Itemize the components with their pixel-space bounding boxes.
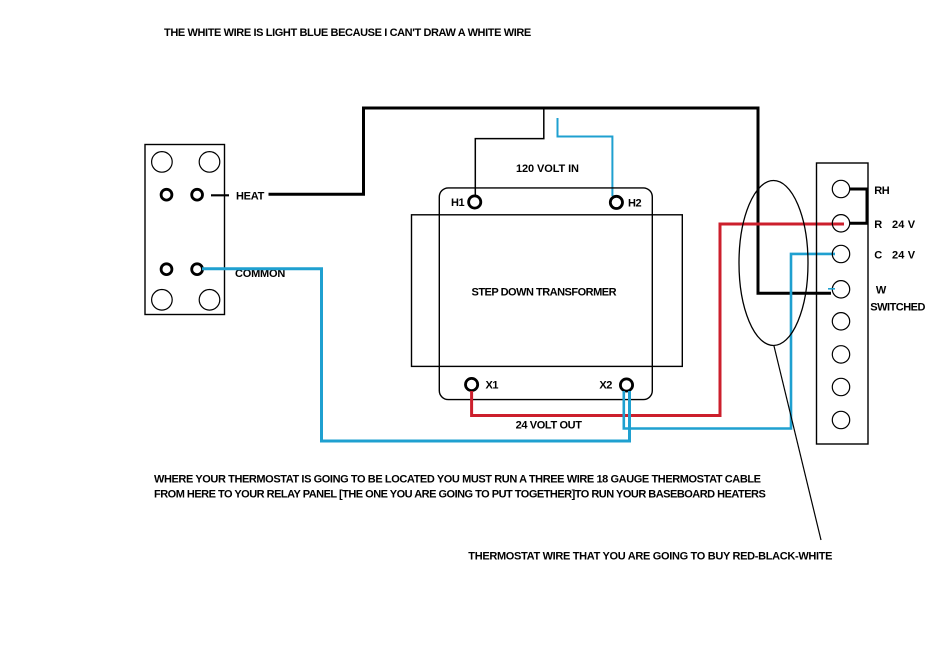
svg-text:FROM HERE TO YOUR RELAY PANEL: FROM HERE TO YOUR RELAY PANEL [THE ONE Y…	[154, 489, 765, 501]
svg-text:X1: X1	[486, 380, 499, 392]
svg-text:THE WHITE WIRE IS LIGHT BLUE B: THE WHITE WIRE IS LIGHT BLUE BECAUSE I C…	[164, 27, 531, 39]
svg-text:STEP DOWN TRANSFORMER: STEP DOWN TRANSFORMER	[472, 287, 617, 299]
svg-text:WHERE YOUR THERMOSTAT IS GOING: WHERE YOUR THERMOSTAT IS GOING TO BE LOC…	[154, 474, 761, 486]
svg-text:H1: H1	[451, 197, 464, 209]
svg-text:SWITCHED: SWITCHED	[870, 302, 925, 314]
svg-text:H2: H2	[628, 198, 641, 210]
svg-text:THERMOSTAT WIRE THAT YOU ARE G: THERMOSTAT WIRE THAT YOU ARE GOING TO BU…	[468, 551, 832, 563]
svg-text:C 24 V: C 24 V	[874, 250, 915, 262]
svg-text:W: W	[876, 285, 887, 297]
svg-text:24 VOLT OUT: 24 VOLT OUT	[516, 420, 583, 432]
svg-text:HEAT: HEAT	[236, 191, 265, 203]
svg-text:RH: RH	[874, 185, 889, 197]
svg-text:R 24 V: R 24 V	[874, 219, 915, 231]
svg-text:120 VOLT IN: 120 VOLT IN	[516, 163, 579, 175]
svg-text:X2: X2	[599, 380, 612, 392]
